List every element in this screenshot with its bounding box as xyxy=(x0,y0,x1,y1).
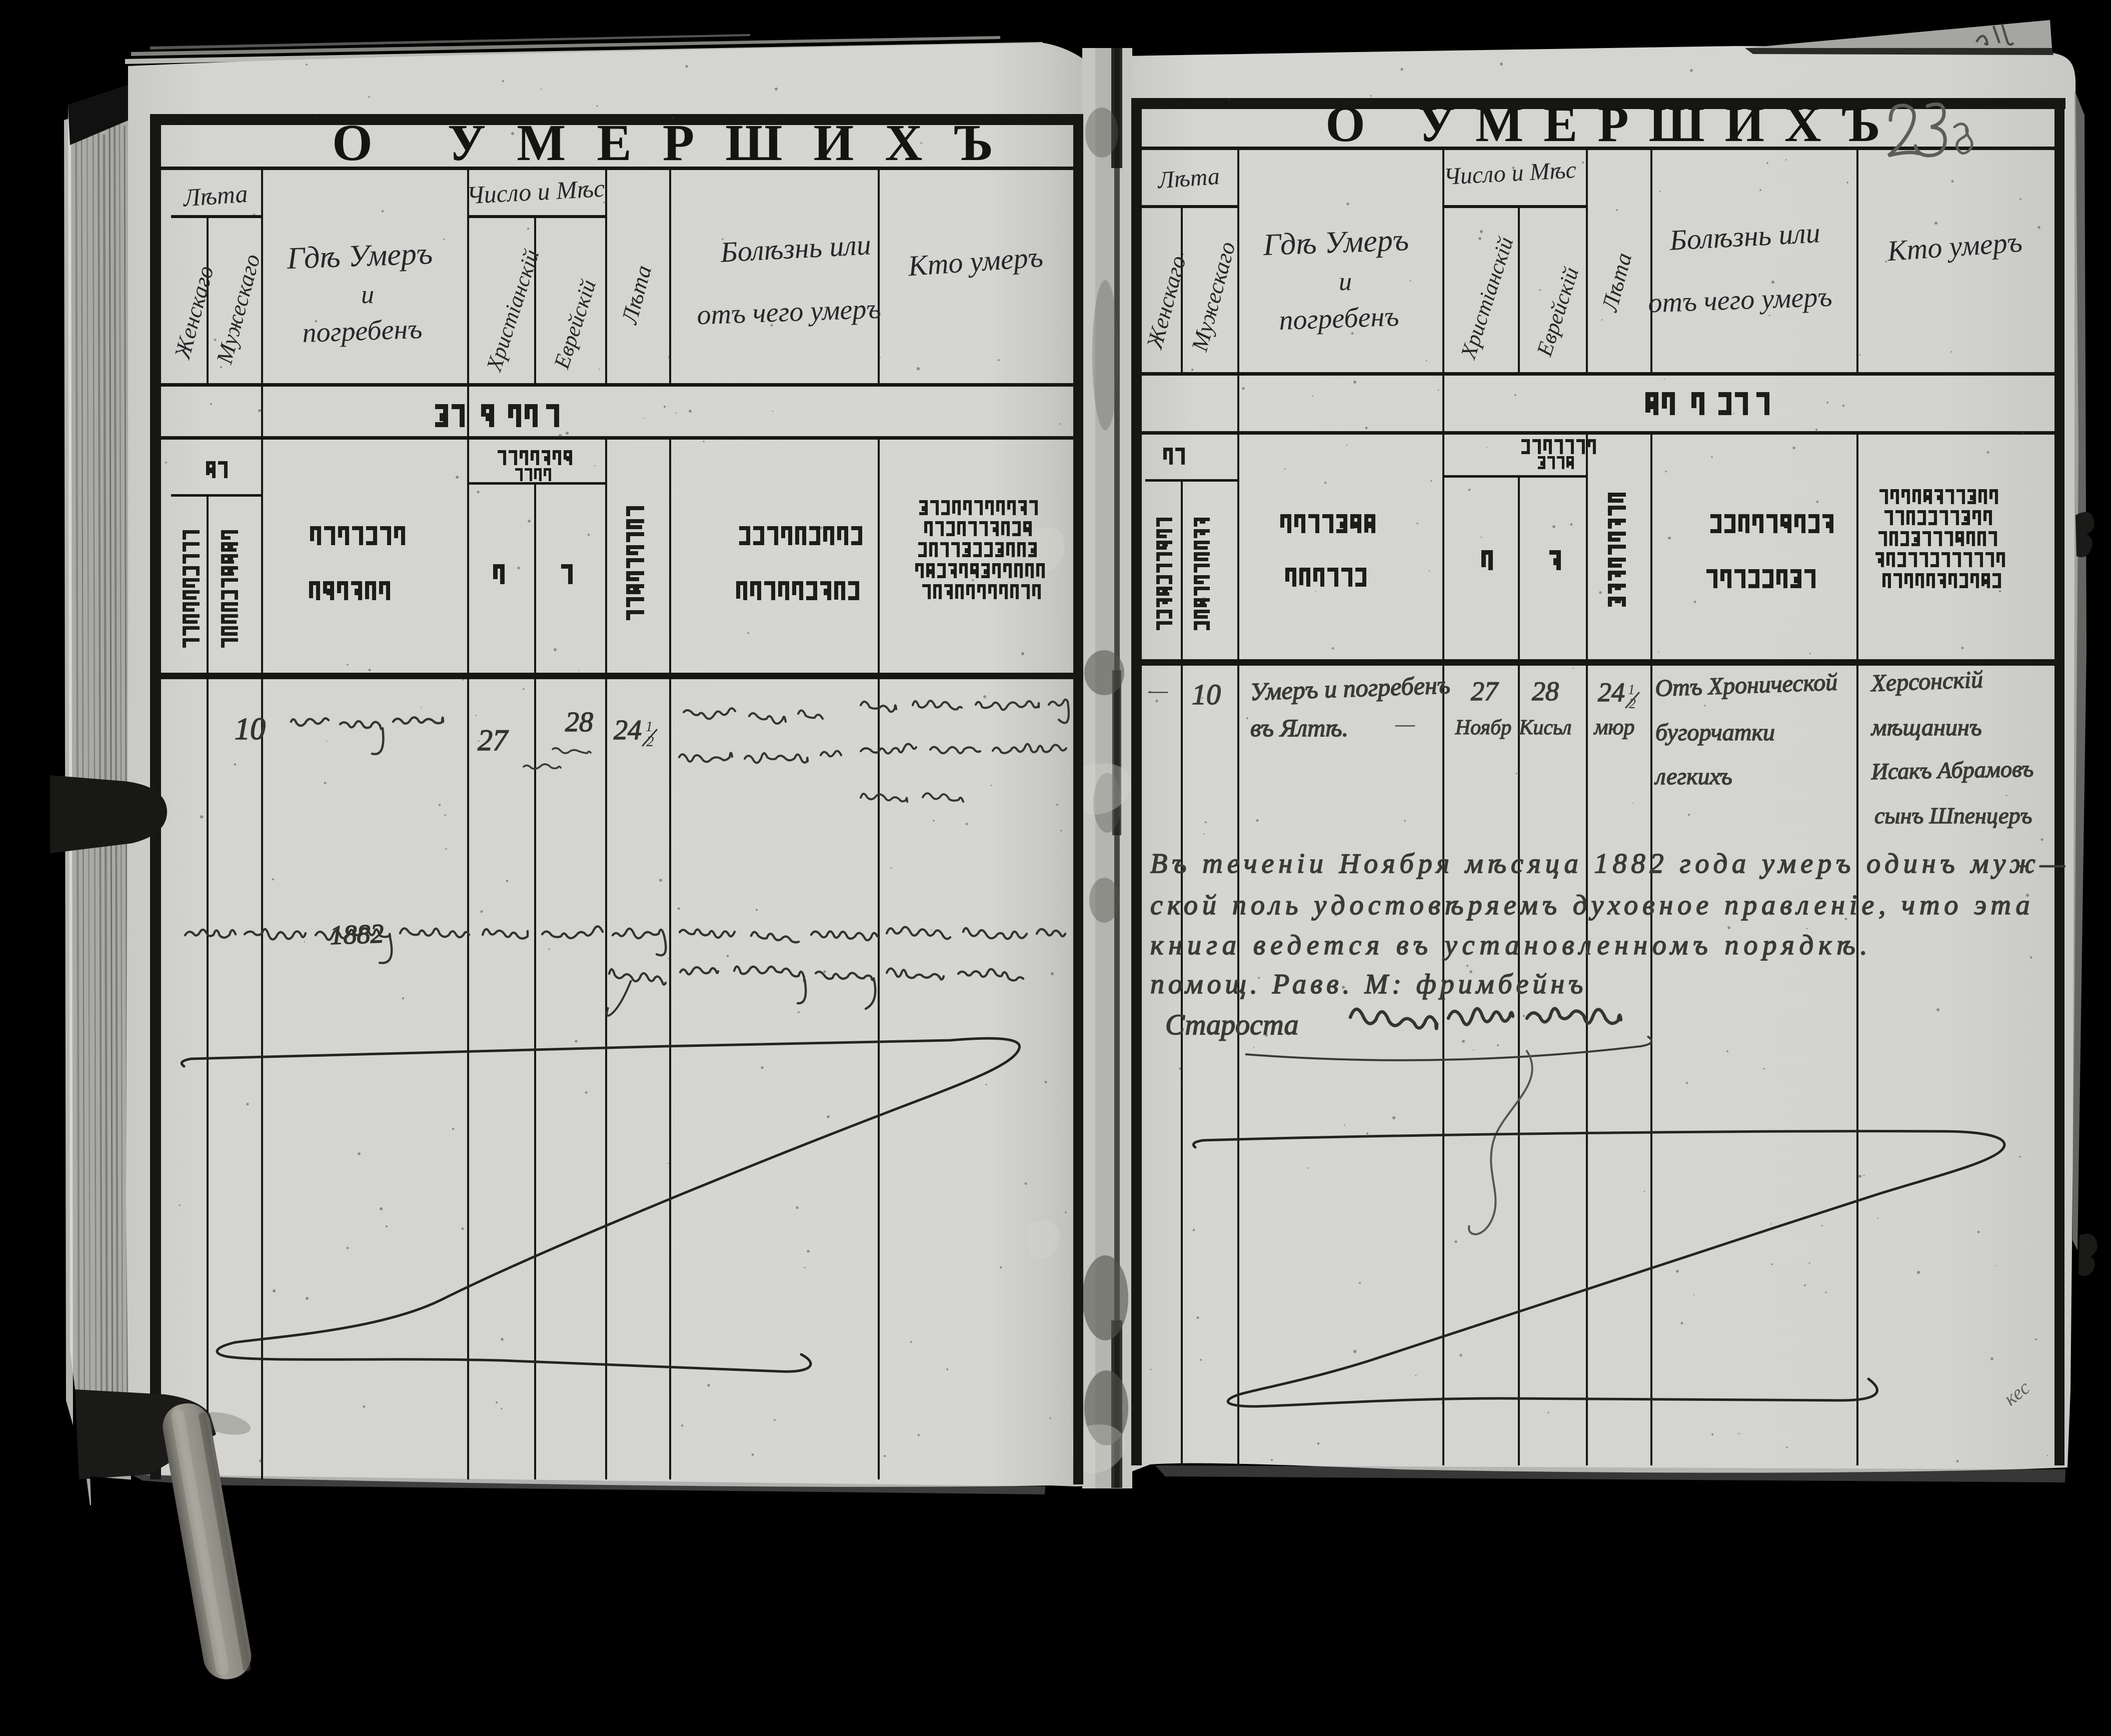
svg-text:Исакъ Абрамовъ: Исакъ Абрамовъ xyxy=(1870,756,2033,784)
svg-text:и: и xyxy=(1339,268,1352,296)
svg-text:ской поль удостовѣряемъ духовн: ской поль удостовѣряемъ духовное правлен… xyxy=(1150,890,2034,921)
svg-text:24: 24 xyxy=(614,715,642,746)
svg-text:и: и xyxy=(361,281,374,309)
svg-text:2: 2 xyxy=(647,733,654,750)
svg-text:въ Ялтѣ.: въ Ялтѣ. xyxy=(1250,714,1348,742)
svg-text:мюр: мюр xyxy=(1593,715,1634,739)
svg-text:легкихъ: легкихъ xyxy=(1654,763,1732,790)
svg-text:24: 24 xyxy=(1598,677,1625,707)
svg-text:Староста: Староста xyxy=(1165,1008,1298,1041)
svg-text:—: — xyxy=(1395,712,1415,736)
svg-text:Гдѣ Умеръ: Гдѣ Умеръ xyxy=(1262,223,1409,262)
svg-text:сынъ Шпенцеръ: сынъ Шпенцеръ xyxy=(1874,803,2032,828)
svg-text:1: 1 xyxy=(1628,682,1635,698)
svg-text:28: 28 xyxy=(565,707,593,738)
svg-text:бугорчатки: бугорчатки xyxy=(1655,719,1775,746)
svg-text:отъ чего умеръ: отъ чего умеръ xyxy=(1647,282,1832,319)
svg-text:Въ теченіи Ноября мѣсяца 1882: Въ теченіи Ноября мѣсяца 1882 года умеръ… xyxy=(1150,848,2069,879)
svg-text:27: 27 xyxy=(1471,676,1499,706)
svg-text:отъ чего умеръ: отъ чего умеръ xyxy=(696,294,881,331)
svg-text:Кисьл: Кисьл xyxy=(1519,716,1572,739)
svg-text:Херсонскій: Херсонскій xyxy=(1870,666,1983,697)
svg-text:1: 1 xyxy=(646,718,653,735)
svg-text:28: 28 xyxy=(1532,676,1559,706)
svg-text:10: 10 xyxy=(1192,678,1221,711)
svg-text:погребенъ: погребенъ xyxy=(1278,301,1399,336)
svg-text:Лѣта: Лѣта xyxy=(1156,163,1220,194)
svg-text:27: 27 xyxy=(478,724,509,757)
svg-text:помощ. Равв. М: фримбейнъ: помощ. Равв. М: фримбейнъ xyxy=(1150,969,1587,1000)
svg-text:мѣщанинъ: мѣщанинъ xyxy=(1870,714,1982,741)
svg-text:1882: 1882 xyxy=(329,918,384,950)
svg-text:Ноябр: Ноябр xyxy=(1455,716,1511,739)
svg-text:погребенъ: погребенъ xyxy=(302,314,423,349)
svg-text:Лѣта: Лѣта xyxy=(182,180,249,212)
svg-text:книга ведется въ установленном: книга ведется въ установленномъ порядкѣ. xyxy=(1150,930,1872,961)
svg-text:10: 10 xyxy=(235,712,266,746)
svg-text:Гдѣ Умеръ: Гдѣ Умеръ xyxy=(286,237,433,276)
svg-text:—: — xyxy=(1148,678,1168,703)
svg-text:О УМЕРШИХЪ: О УМЕРШИХЪ xyxy=(1325,96,1900,153)
